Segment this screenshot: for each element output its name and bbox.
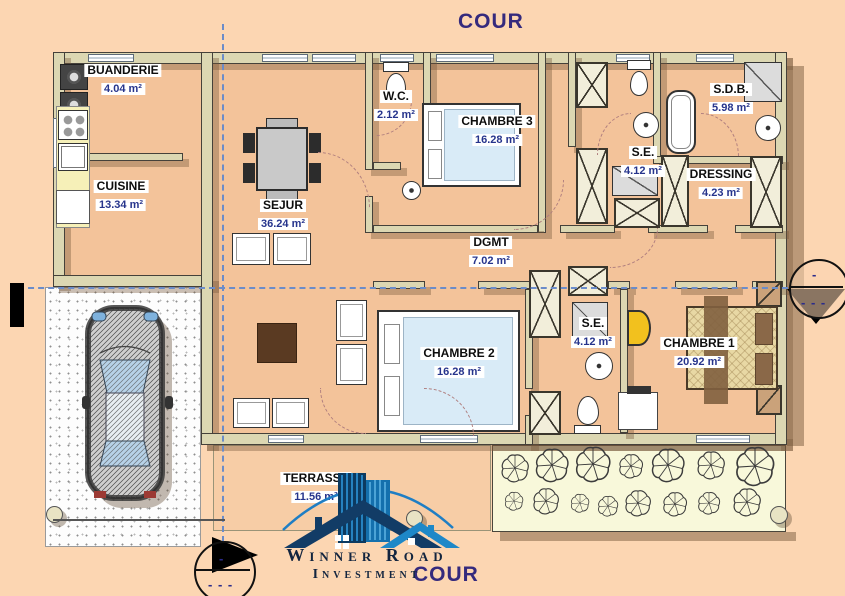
- sofa-right-2: [336, 344, 367, 385]
- floor-plan: - - - - - - - - BUANDERIE 4.04 m² CUISIN…: [0, 0, 845, 596]
- sofa-bottom-2: [272, 398, 309, 428]
- bed3-pillow-2: [428, 149, 442, 179]
- se-top-toilet-tank: [627, 60, 651, 70]
- bed3-pillow-1: [428, 111, 442, 141]
- garden-shadow-bottom: [500, 532, 796, 541]
- column-garden: [770, 506, 788, 524]
- dining-chair-2: [243, 163, 255, 183]
- room-label-sejur: SEJUR 36.24 m²: [258, 196, 308, 232]
- winner-road-logo-icon: [268, 425, 468, 560]
- bed1-pillow-1: [755, 313, 773, 345]
- stove: [58, 110, 88, 140]
- bed2-pillow-2: [384, 376, 400, 416]
- wall-top: [53, 52, 787, 64]
- wall-sejur-hall-upper: [365, 52, 373, 170]
- sdb-sink: [755, 115, 781, 141]
- car: [80, 298, 175, 510]
- wall-dgmt-top-2: [560, 225, 615, 233]
- section-dash-bottom-2: - - -: [801, 296, 826, 309]
- sofa-right-1: [336, 300, 367, 341]
- se-bottom-toilet-tank: [574, 425, 601, 434]
- axis-horizontal: [18, 287, 788, 289]
- dining-chair-3: [309, 133, 321, 153]
- closet-se-top-1: [576, 62, 608, 108]
- se-top-toilet-bowl: [630, 71, 648, 96]
- room-label-dgmt: DGMT 7.02 m²: [469, 233, 513, 269]
- room-label-cuisine: CUISINE 13.34 m²: [94, 177, 149, 213]
- section-mark-left: [10, 283, 24, 327]
- se-bottom-sink: [585, 352, 613, 380]
- wall-kitchen-bottom: [53, 275, 213, 287]
- axis-vertical: [222, 24, 224, 542]
- section-dash-top-2: -: [812, 268, 817, 281]
- closet-corridor-1: [529, 270, 561, 338]
- wall-main-left: [201, 52, 213, 445]
- coffee-table: [257, 323, 297, 363]
- sofa-top-1: [232, 233, 270, 265]
- wall-se-top-left: [568, 52, 576, 147]
- dining-table: [256, 127, 308, 191]
- closet-corridor-2: [568, 266, 608, 296]
- section-circle-bottom-line: [196, 569, 250, 571]
- room-label-buanderie: BUANDERIE 4.04 m²: [84, 61, 161, 97]
- room-label-se-bottom: S.E. 4.12 m²: [571, 314, 615, 350]
- room-label-sdb: S.D.B. 5.98 m²: [709, 80, 753, 116]
- closet-se-top-2: [576, 148, 608, 224]
- room-label-chambre2: CHAMBRE 2 16.28 m²: [420, 344, 497, 380]
- bed1-pillow-2: [755, 353, 773, 385]
- ch1-dresser: [618, 392, 658, 430]
- garden-trees: [492, 445, 786, 532]
- kitchen-sink: [58, 143, 88, 171]
- room-label-se-top: S.E. 4.12 m²: [621, 143, 665, 179]
- se-top-sink: [633, 112, 659, 138]
- kitchen-cabinet: [56, 190, 90, 224]
- room-label-chambre1: CHAMBRE 1 20.92 m²: [660, 334, 737, 370]
- closet-se-bottom: [529, 391, 561, 435]
- dining-chair-1: [243, 133, 255, 153]
- cour-label-top: COUR: [458, 10, 524, 34]
- room-label-chambre3: CHAMBRE 3 16.28 m²: [458, 112, 535, 148]
- window-sdb: [696, 54, 734, 62]
- window-sejur-1: [262, 54, 308, 62]
- closet-dressing-left: [661, 155, 689, 227]
- nightstand-ch1-top: [756, 281, 782, 307]
- window-ch3: [436, 54, 494, 62]
- bed2-pillow-1: [384, 324, 400, 364]
- closet-se-top-3: [614, 198, 660, 228]
- section-dash-bottom-1: - - -: [208, 578, 233, 591]
- tree-icon: [502, 455, 528, 482]
- ch1-dresser-top: [627, 386, 651, 394]
- wall-wc-bottom: [373, 162, 401, 170]
- window-wc: [380, 54, 414, 62]
- se-bottom-toilet-bowl: [577, 396, 599, 425]
- hall-sink: [402, 181, 421, 200]
- section-line-garage: [53, 519, 225, 521]
- section-circle-right-line: [791, 286, 843, 288]
- dining-bench-top: [266, 118, 298, 128]
- room-label-dressing: DRESSING 4.23 m²: [687, 165, 756, 201]
- logo-text-line2: Investment: [262, 567, 472, 583]
- room-label-wc: W.C. 2.12 m²: [374, 87, 418, 123]
- vanity-yellow: [627, 310, 651, 346]
- window-ch1: [696, 435, 750, 443]
- window-sejur-2: [312, 54, 356, 62]
- sofa-bottom-1: [233, 398, 270, 428]
- sdb-bathtub: [666, 90, 696, 154]
- logo-text-line1: Winner Road: [262, 545, 472, 566]
- sofa-top-2: [273, 233, 311, 265]
- building-shadow-right: [787, 66, 804, 446]
- section-dash-top-1: -: [219, 552, 224, 565]
- wc-toilet-tank: [383, 62, 409, 72]
